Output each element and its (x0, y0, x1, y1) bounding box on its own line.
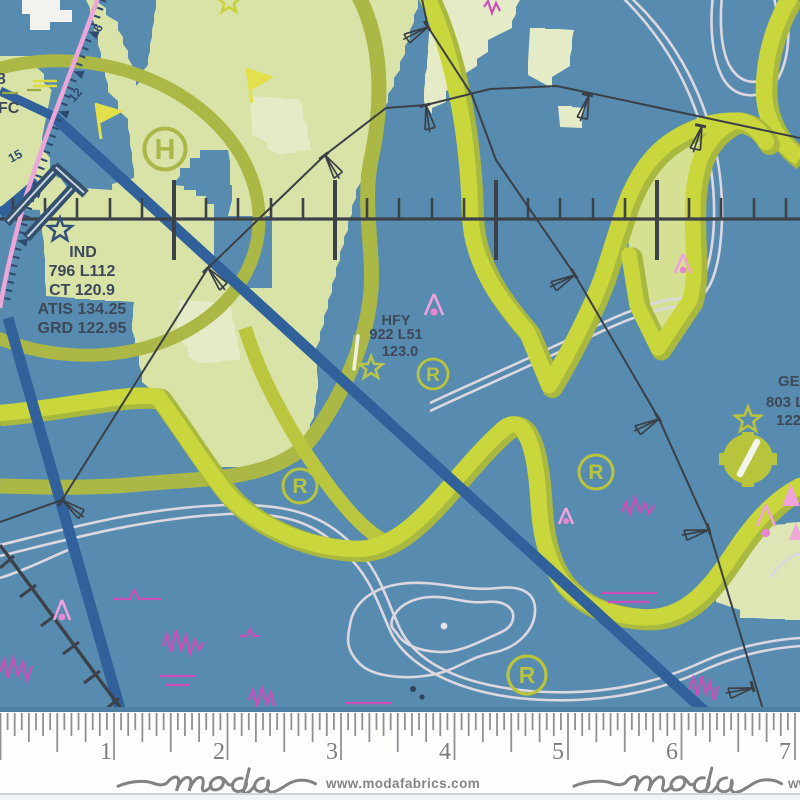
svg-text:ATIS 134.25: ATIS 134.25 (38, 301, 127, 318)
svg-text:GRD 122.95: GRD 122.95 (38, 320, 127, 337)
svg-text:IND: IND (69, 244, 97, 261)
svg-text:R: R (588, 461, 603, 484)
svg-text:922 L51: 922 L51 (369, 327, 422, 343)
svg-text:1: 1 (100, 739, 112, 765)
svg-text:R: R (426, 365, 440, 386)
svg-text:122.: 122. (776, 412, 800, 429)
svg-text:48: 48 (0, 71, 6, 88)
svg-text:123.0: 123.0 (382, 344, 418, 360)
svg-text:GEZ: GEZ (778, 373, 800, 390)
svg-text:5: 5 (552, 739, 564, 765)
svg-text:H: H (155, 134, 176, 166)
svg-text:www.modafabrics.com: www.modafabrics.com (325, 776, 480, 791)
svg-text:2: 2 (213, 739, 225, 765)
svg-text:R: R (292, 475, 307, 498)
svg-text:796 L112: 796 L112 (49, 263, 116, 280)
svg-text:www: www (787, 776, 800, 791)
svg-text:FC: FC (0, 100, 20, 117)
svg-text:R: R (519, 662, 536, 688)
svg-text:3: 3 (326, 739, 338, 765)
svg-text:4: 4 (439, 739, 451, 765)
svg-text:CT 120.9: CT 120.9 (49, 282, 115, 299)
svg-text:803 L: 803 L (766, 394, 800, 411)
svg-text:6: 6 (666, 739, 678, 765)
svg-text:7: 7 (779, 739, 791, 765)
